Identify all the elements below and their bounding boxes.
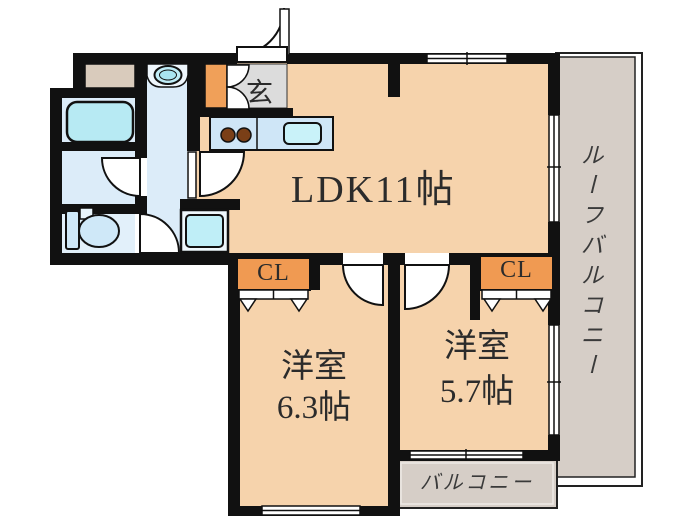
toilet-icon	[79, 215, 119, 247]
closet1-label: CL	[237, 260, 310, 287]
bedroom2-label-line1: 洋室	[406, 325, 548, 370]
wall-right-c	[548, 435, 560, 461]
stove-burner-right-icon	[237, 128, 251, 142]
wall-washroom-toilet	[50, 204, 147, 214]
washbasin-bowl-inner	[160, 70, 177, 80]
shoe-cabinet	[205, 64, 227, 108]
stove-burner-left-icon	[221, 128, 235, 142]
wall-top-right	[287, 53, 560, 64]
ldk-room-label: LDK11帖	[291, 158, 456, 213]
wall-top-left	[73, 53, 237, 64]
bedroom2-door-opening	[405, 253, 449, 265]
wall-bathroom-top	[50, 88, 147, 98]
wall-laundry-nook-top	[180, 199, 240, 210]
bedroom2-room-label: 洋室 5.7帖	[406, 325, 548, 415]
toilet-tank	[66, 211, 79, 249]
wall-corridor-left-upper	[135, 57, 147, 158]
bedroom1-label-line2: 6.3帖	[240, 388, 388, 429]
wall-corridor-right-upper	[187, 53, 205, 117]
wall-bedroom1-left	[228, 253, 240, 516]
entrance-label: 玄	[246, 71, 273, 110]
wall-corridor-right-lower	[187, 117, 200, 151]
bedroom1-room-label: 洋室 6.3帖	[240, 347, 388, 429]
kitchen-sink-icon	[284, 123, 321, 144]
ldk-door-leaf	[188, 152, 196, 198]
closet2-label: CL	[480, 257, 553, 284]
floorplan: LDK11帖 洋室 6.3帖 洋室 5.7帖 CL CL 玄 バルコニー ルーフ…	[0, 0, 700, 525]
wall-bath-washroom	[62, 142, 147, 151]
entry-door-leaf	[237, 47, 287, 62]
washing-machine-pan-inner	[186, 215, 223, 247]
bedroom2-label-line2: 5.7帖	[406, 370, 548, 415]
wall-closet1-stub	[310, 253, 320, 290]
wall-pillar-stub	[388, 64, 400, 97]
bathtub-icon	[67, 102, 133, 142]
wall-right-a	[548, 53, 560, 115]
wall-outer-left	[50, 88, 62, 265]
wall-corridor-left-lower	[135, 196, 147, 214]
roof-balcony-label: ルーフバルコニー	[572, 143, 606, 413]
bedroom1-label-line1: 洋室	[240, 347, 388, 388]
pipe-shaft	[85, 64, 135, 88]
balcony-label: バルコニー	[399, 466, 555, 495]
bedroom1-door-opening	[343, 253, 383, 265]
wall-closet2-stub	[470, 253, 480, 320]
